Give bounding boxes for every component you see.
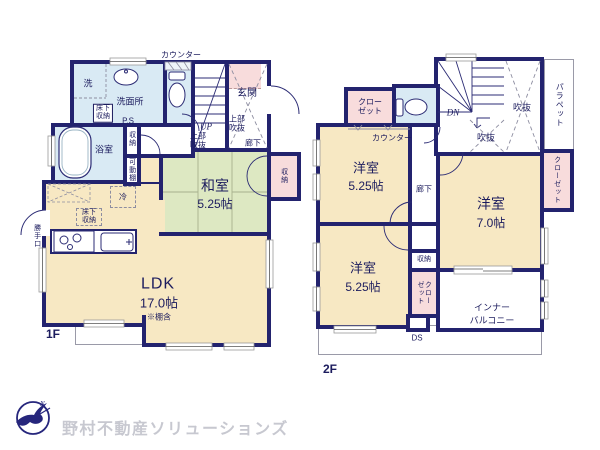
hall-1f — [137, 123, 195, 158]
label-washitsu-size: 5.25帖 — [197, 197, 232, 211]
label-washitsu: 和室 — [201, 178, 229, 195]
label-back-door: 勝手口 — [33, 224, 40, 248]
label-counter-1f: カウンター — [161, 50, 201, 59]
label-ldk-size: 17.0帖 — [140, 295, 178, 310]
label-ldk-note: ※棚含 — [147, 312, 171, 321]
label-movable-shelf: 可動棚 — [128, 158, 135, 182]
label-void-small: 吹抜 — [477, 133, 495, 144]
room-bath — [51, 123, 127, 184]
label-closet-nw: クローゼット — [357, 98, 383, 117]
company-name: 野村不動産ソリューションズ — [62, 415, 289, 439]
label-parapet: パラペット — [555, 83, 563, 128]
label-washroom: 洗面所 — [116, 97, 143, 108]
label-floor-1f: 1F — [46, 327, 60, 341]
label-washitsu-storage: 収納 — [280, 168, 287, 184]
label-kitchen-underfloor: 床下収納 — [81, 209, 97, 226]
label-entrance-upper-void: 上部吹抜 — [228, 115, 246, 134]
label-ldk: LDK — [141, 276, 175, 295]
label-corridor-1f: 廊下 — [245, 138, 261, 147]
label-bathroom: 浴室 — [95, 145, 113, 156]
label-stairs-upper-void: 上部吹抜 — [189, 132, 207, 151]
kitchen-counter — [50, 229, 137, 254]
label-corridor-2f: 廊下 — [416, 184, 432, 193]
ds-box — [406, 314, 430, 332]
label-hall-storage: 収納 — [128, 131, 135, 147]
label-counter-2f: カウンター — [372, 133, 412, 142]
porch-outline-1f — [75, 325, 145, 345]
label-entrance: 玄関 — [237, 88, 257, 100]
label-storage-2f: 収納 — [417, 256, 431, 264]
label-room-b: 洋室 — [477, 196, 505, 213]
label-void-large: 吹抜 — [513, 103, 531, 114]
label-laundry: 洗 — [83, 79, 92, 90]
label-room-c: 洋室 — [350, 260, 376, 275]
pantry-strip — [139, 156, 161, 182]
room-washroom — [70, 60, 167, 127]
label-fridge: 冷 — [119, 192, 127, 201]
label-room-a: 洋室 — [353, 160, 379, 175]
label-underfloor-storage: 床下収納 — [93, 104, 113, 123]
label-closet-east: クローゼット — [553, 156, 560, 204]
label-dn: DN — [447, 108, 460, 119]
label-room-a-size: 5.25帖 — [348, 179, 383, 193]
entrance-porch-strip — [229, 64, 261, 89]
label-room-c-size: 5.25帖 — [345, 280, 380, 294]
label-closet-south: クローゼット — [417, 280, 432, 306]
svg-text:N: N — [39, 400, 45, 408]
nomura-bird-logo: N — [13, 397, 55, 439]
label-balcony-line2: バルコニー — [470, 316, 515, 327]
floorplan-image: カウンター 洗 洗面所 床下収納 P.S 浴室 収納 可動棚 玄関 上部吹抜 廊… — [0, 0, 600, 450]
label-room-b-size: 7.0帖 — [477, 216, 506, 230]
room-toilet-2f — [392, 84, 440, 127]
label-ps: P.S — [122, 116, 134, 125]
front-door — [267, 86, 299, 114]
label-floor-2f: 2F — [323, 362, 337, 376]
label-ds: DS — [411, 333, 422, 342]
label-balcony-line1: インナー — [474, 303, 510, 314]
